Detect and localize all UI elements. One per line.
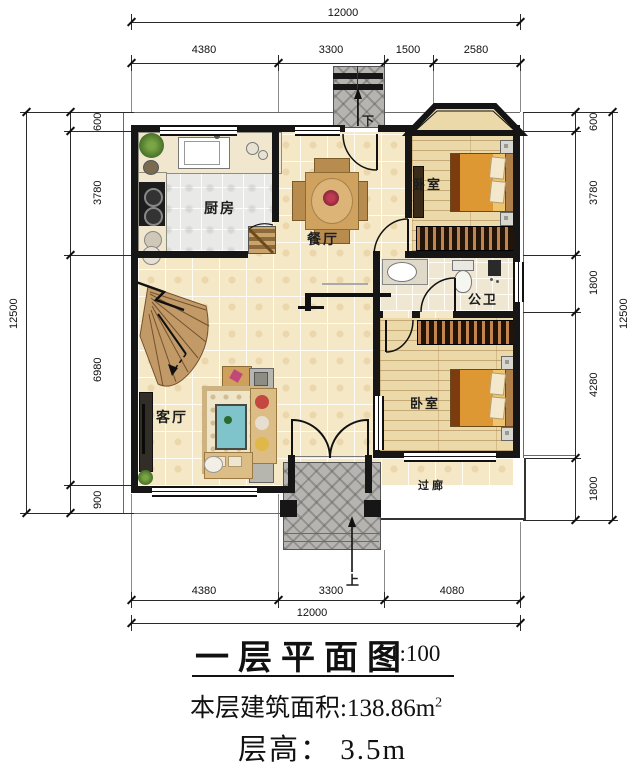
wardrobe-bottom — [417, 320, 515, 345]
nightstand — [500, 140, 514, 154]
dim-line-top-segments — [131, 63, 520, 64]
room-label-bedroom-top: 卧室 — [412, 174, 442, 193]
nightstand — [500, 212, 514, 226]
tv — [142, 404, 145, 454]
entry-up-arrow — [346, 516, 358, 574]
wall-kitchen-bottom — [131, 251, 248, 258]
bathroom-door — [419, 276, 457, 314]
wall-bathroom-left — [373, 251, 380, 318]
dim-left-overall: 12500 — [8, 283, 20, 345]
room-label-corridor: 过廊 — [418, 477, 446, 493]
dim-right-1: 600 — [588, 102, 600, 142]
coffee-table — [215, 404, 247, 450]
window-living — [152, 486, 257, 497]
window-dining — [295, 125, 340, 136]
dim-top-4: 2580 — [446, 44, 506, 56]
plan-title: 一层平面图 — [195, 630, 410, 679]
bath-sink — [387, 262, 417, 282]
dim-line-left-overall — [26, 112, 27, 513]
table-flowers — [323, 190, 339, 206]
dim-top-2: 3300 — [301, 44, 361, 56]
dim-right-4: 4280 — [588, 360, 600, 410]
rear-door — [341, 132, 379, 172]
dim-line-bottom-segments — [131, 600, 520, 601]
cushion — [255, 416, 269, 430]
annotation-up: 上 — [346, 570, 361, 589]
wall-bathroom-bottom-c — [453, 311, 520, 318]
dim-bottom-overall: 12000 — [282, 607, 342, 619]
dim-top-3: 1500 — [378, 44, 438, 56]
entry-double-door — [289, 414, 371, 460]
window-bedroom-bottom — [404, 451, 496, 462]
dim-line-left-segments — [70, 112, 71, 513]
floor-plan-canvas: 12000 4380 3300 1500 2580 4380 3300 4080… — [0, 0, 640, 770]
title-underline — [192, 675, 454, 677]
bedroom-top-door — [372, 217, 410, 258]
annotation-down: 下 — [362, 112, 376, 129]
plant-living — [138, 470, 153, 485]
room-label-living: 客厅 — [156, 407, 188, 427]
window-bedroom-bottom-left — [373, 396, 384, 450]
dim-line-top-overall — [131, 22, 520, 23]
wall-left — [131, 125, 138, 493]
plan-scale: 1:100 — [388, 641, 440, 667]
room-label-bathroom: 公卫 — [468, 289, 498, 308]
dim-line-right-overall — [612, 112, 613, 520]
dim-left-4: 900 — [92, 480, 104, 520]
area-superscript: 2 — [435, 696, 442, 711]
dim-line-bottom-overall — [131, 623, 520, 624]
dim-right-overall: 12500 — [618, 283, 630, 345]
wardrobe-top — [416, 226, 515, 251]
room-label-dining: 餐厅 — [307, 229, 339, 249]
dim-top-1: 4380 — [174, 44, 234, 56]
cushion — [255, 437, 269, 451]
wall-hall-bedroom-top — [405, 125, 412, 218]
dim-top-overall: 12000 — [313, 7, 373, 19]
porch-pillar-left — [280, 500, 297, 517]
window-kitchen — [160, 125, 237, 136]
dim-bottom-1: 4380 — [174, 585, 234, 597]
entry-jamb-right — [365, 455, 372, 493]
eave-line-left — [123, 112, 124, 513]
floor-height-text: 层高： 3.5m — [238, 726, 407, 768]
bedroom-bottom-door — [384, 318, 415, 354]
dim-left-1: 600 — [92, 102, 104, 142]
wall-bathroom-top — [405, 251, 520, 258]
window-bathroom — [513, 262, 524, 302]
dim-bottom-3: 4080 — [422, 585, 482, 597]
shower-head — [488, 260, 501, 276]
dim-left-3: 6980 — [92, 345, 104, 395]
wall-bathroom-bottom-a — [373, 311, 383, 318]
room-label-bedroom-bottom: 卧室 — [410, 393, 440, 412]
dim-right-2: 3780 — [588, 168, 600, 218]
dim-right-5: 1800 — [588, 464, 600, 514]
wall-kitchen-dining — [272, 125, 279, 222]
plant-kitchen — [139, 133, 164, 158]
room-label-kitchen: 厨房 — [204, 198, 236, 218]
bay-window — [406, 100, 524, 136]
dim-right-3: 1800 — [588, 258, 600, 308]
porch-pillar-right — [364, 500, 381, 517]
kitchen-door — [244, 223, 275, 255]
ottoman — [204, 456, 223, 473]
dim-left-2: 3780 — [92, 168, 104, 218]
area-text: 本层建筑面积:138.86m2 — [190, 688, 442, 724]
cushion — [255, 395, 269, 409]
spiral-stairs — [130, 280, 210, 400]
entry-jamb-left — [288, 455, 295, 493]
